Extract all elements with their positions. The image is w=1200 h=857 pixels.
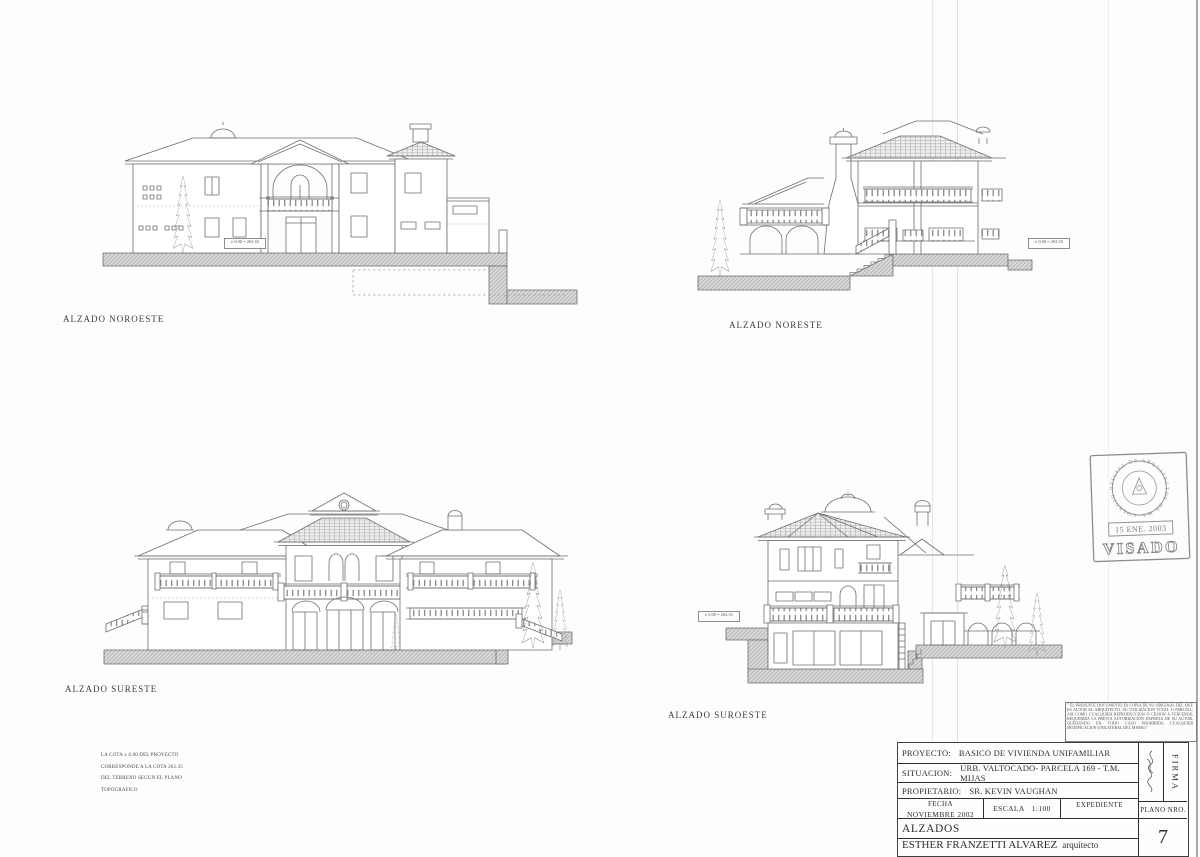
label-alzado-noreste: ALZADO NORESTE: [729, 320, 823, 330]
right-annex: [920, 584, 1040, 645]
title-block-proyecto-row: PROYECTO: BASICO DE VIVIENDA UNIFAMILIAR: [898, 743, 1139, 764]
visado-stamp: COLEGIO OFICIAL DE ARQUITECTOS DE MALAGA…: [1084, 448, 1196, 567]
elevation-drawing-suroeste: [688, 493, 1073, 703]
main-block: [754, 513, 910, 669]
right-wing: [382, 511, 568, 651]
propietario-label: PROPIETARIO:: [902, 786, 961, 796]
signature-cell: [1139, 743, 1164, 802]
fecha-value: NOVIEMBRE 2002: [898, 810, 983, 819]
expediente-cell: EXPEDIENTE: [1061, 799, 1139, 819]
house-body: [742, 121, 1006, 254]
datum-level-box: ± 0.00 = 263.35: [1028, 238, 1070, 249]
plano-nro-header: PLANO NRO.: [1139, 802, 1187, 819]
stamp-circle-text: COLEGIO OFICIAL DE ARQUITECTOS DE MALAGA: [1084, 448, 1170, 520]
datum-level-box: ± 0.00 = 263.35: [224, 238, 266, 249]
situacion-value: URB. VALTOCADO- PARCELA 169 - T.M. MIJAS: [960, 763, 1138, 783]
scanned-architectural-sheet: { "elevations": [ {"id": "noroeste", "la…: [0, 0, 1200, 857]
proyecto-label: PROYECTO:: [902, 748, 951, 758]
author-name: ESTHER FRANZETTI ALVAREZ: [902, 839, 1057, 851]
elevation-drawing-noroeste: [95, 98, 590, 323]
escala-cell: ESCALA 1:100: [984, 799, 1061, 819]
note-line: CORRESPONDE A LA COTA 263.35: [101, 763, 231, 770]
ground-section: [103, 253, 577, 304]
plano-number: 7: [1158, 826, 1168, 849]
label-alzado-noroeste: ALZADO NOROESTE: [63, 314, 164, 324]
copyright-disclaimer-box: " EL PRESENTE DOCUMENTO ES COPIA DE SU O…: [1065, 702, 1197, 742]
note-line: LA COTA ± 0.00 DEL PROYECTO: [101, 751, 231, 758]
topographic-note: LA COTA ± 0.00 DEL PROYECTO CORRESPONDE …: [101, 751, 231, 797]
datum-level-text: ± 0.00 = 263.35: [699, 612, 739, 617]
propietario-value: SR. KEVIN VAUGHAN: [969, 786, 1057, 796]
sheet-title-row: ALZADOS: [898, 819, 1139, 839]
plano-number-cell: 7: [1139, 819, 1187, 856]
title-block-situacion-row: SITUACION: URB. VALTOCADO- PARCELA 169 -…: [898, 764, 1139, 783]
copyright-disclaimer-text: " EL PRESENTE DOCUMENTO ES COPIA DE SU O…: [1066, 703, 1194, 731]
house-body: [125, 122, 507, 253]
elevation-drawing-noreste: [688, 108, 1083, 313]
svg-text:COLEGIO OFICIAL DE ARQUITECTOS: COLEGIO OFICIAL DE ARQUITECTOS DE MALAGA: [1084, 448, 1170, 520]
fecha-label: FECHA: [898, 800, 983, 808]
datum-level-text: ± 0.00 = 263.35: [225, 239, 265, 244]
elevation-drawing-sureste: [92, 478, 587, 693]
title-block-propietario-row: PROPIETARIO: SR. KEVIN VAUGHAN: [898, 783, 1139, 799]
ground-section: [698, 254, 1032, 290]
sheet-title: ALZADOS: [902, 823, 960, 835]
escala-value: 1:100: [1032, 804, 1051, 813]
scan-crease: [1108, 0, 1109, 742]
note-line: DEL TERRENO SEGUN EL PLANO: [101, 774, 231, 781]
trees: [994, 565, 1045, 655]
signature-scribble: [1142, 747, 1160, 797]
firma-label: FIRMA: [1171, 754, 1181, 791]
author-role: arquitecto: [1062, 840, 1098, 850]
author-row: ESTHER FRANZETTI ALVAREZ arquitecto: [898, 839, 1139, 856]
label-alzado-sureste: ALZADO SURESTE: [65, 684, 157, 694]
plano-nro-label: PLANO NRO.: [1140, 806, 1186, 814]
stamp-visado-text: VISADO: [1103, 539, 1181, 559]
firma-cell: FIRMA: [1164, 743, 1187, 802]
label-alzado-suroeste: ALZADO SUROESTE: [668, 710, 768, 720]
datum-level-text: ± 0.00 = 263.35: [1029, 239, 1069, 244]
expediente-label: EXPEDIENTE: [1061, 801, 1138, 809]
escala-label: ESCALA: [993, 804, 1025, 813]
situacion-label: SITUACION:: [902, 768, 952, 778]
proyecto-value: BASICO DE VIVIENDA UNIFAMILIAR: [959, 748, 1110, 758]
stamp-date: 15 ENE. 2003: [1115, 524, 1167, 535]
datum-level-box: ± 0.00 = 263.35: [698, 611, 740, 622]
title-block: PROYECTO: BASICO DE VIVIENDA UNIFAMILIAR…: [897, 742, 1189, 857]
fecha-cell: FECHA NOVIEMBRE 2002: [898, 799, 984, 819]
tree: [711, 200, 729, 276]
note-line: TOPOGRAFICO: [101, 786, 231, 793]
